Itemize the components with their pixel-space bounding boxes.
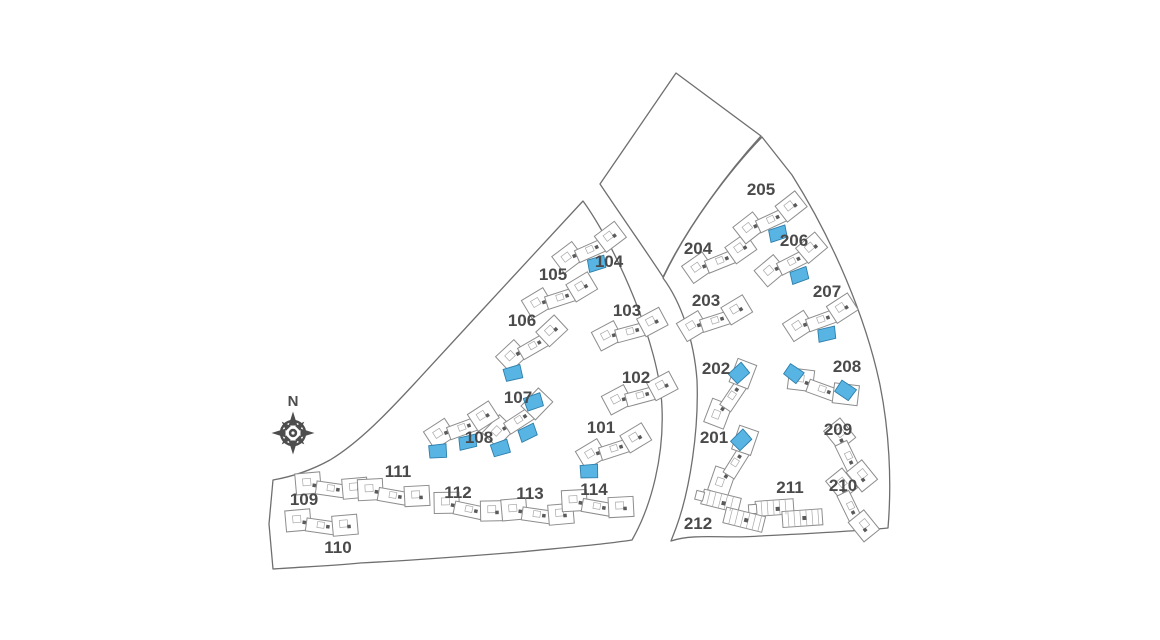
building-111-label[interactable]: 111 <box>385 462 412 481</box>
building-110-label[interactable]: 110 <box>324 538 351 557</box>
building-210-label[interactable]: 210 <box>829 476 857 495</box>
building-101-label[interactable]: 101 <box>587 418 615 437</box>
site-plan-canvas: 1011021031041051061071081091101111121131… <box>0 0 1160 640</box>
building-201-label[interactable]: 201 <box>700 428 728 447</box>
building-202-label[interactable]: 202 <box>702 359 730 378</box>
building-112-label[interactable]: 112 <box>444 483 471 502</box>
building-107-label[interactable]: 107 <box>504 388 532 407</box>
building-207-label[interactable]: 207 <box>813 282 841 301</box>
compass-star <box>272 412 315 455</box>
building-102-label[interactable]: 102 <box>622 368 650 387</box>
building-113-label[interactable]: 113 <box>516 484 543 503</box>
building-109-label[interactable]: 109 <box>290 490 318 509</box>
building-105-label[interactable]: 105 <box>539 265 567 284</box>
building-208-label[interactable]: 208 <box>833 357 861 376</box>
building-205-label[interactable]: 205 <box>747 180 775 199</box>
building-203-label[interactable]: 203 <box>692 291 720 310</box>
building-108-label[interactable]: 108 <box>465 428 493 447</box>
building-114-label[interactable]: 114 <box>580 480 608 499</box>
building-209-label[interactable]: 209 <box>824 420 852 439</box>
site-plan-page: 1011021031041051061071081091101111121131… <box>0 0 1160 640</box>
compass-rose: N <box>272 393 315 455</box>
building-204-label[interactable]: 204 <box>684 239 713 258</box>
building-211-label[interactable]: 211 <box>776 478 803 497</box>
compass-north-label: N <box>288 393 299 410</box>
building-104-label[interactable]: 104 <box>595 252 624 271</box>
building-103-label[interactable]: 103 <box>613 301 641 320</box>
building-206-label[interactable]: 206 <box>780 231 808 250</box>
building-212-label[interactable]: 212 <box>684 514 712 533</box>
building-106-label[interactable]: 106 <box>508 311 536 330</box>
